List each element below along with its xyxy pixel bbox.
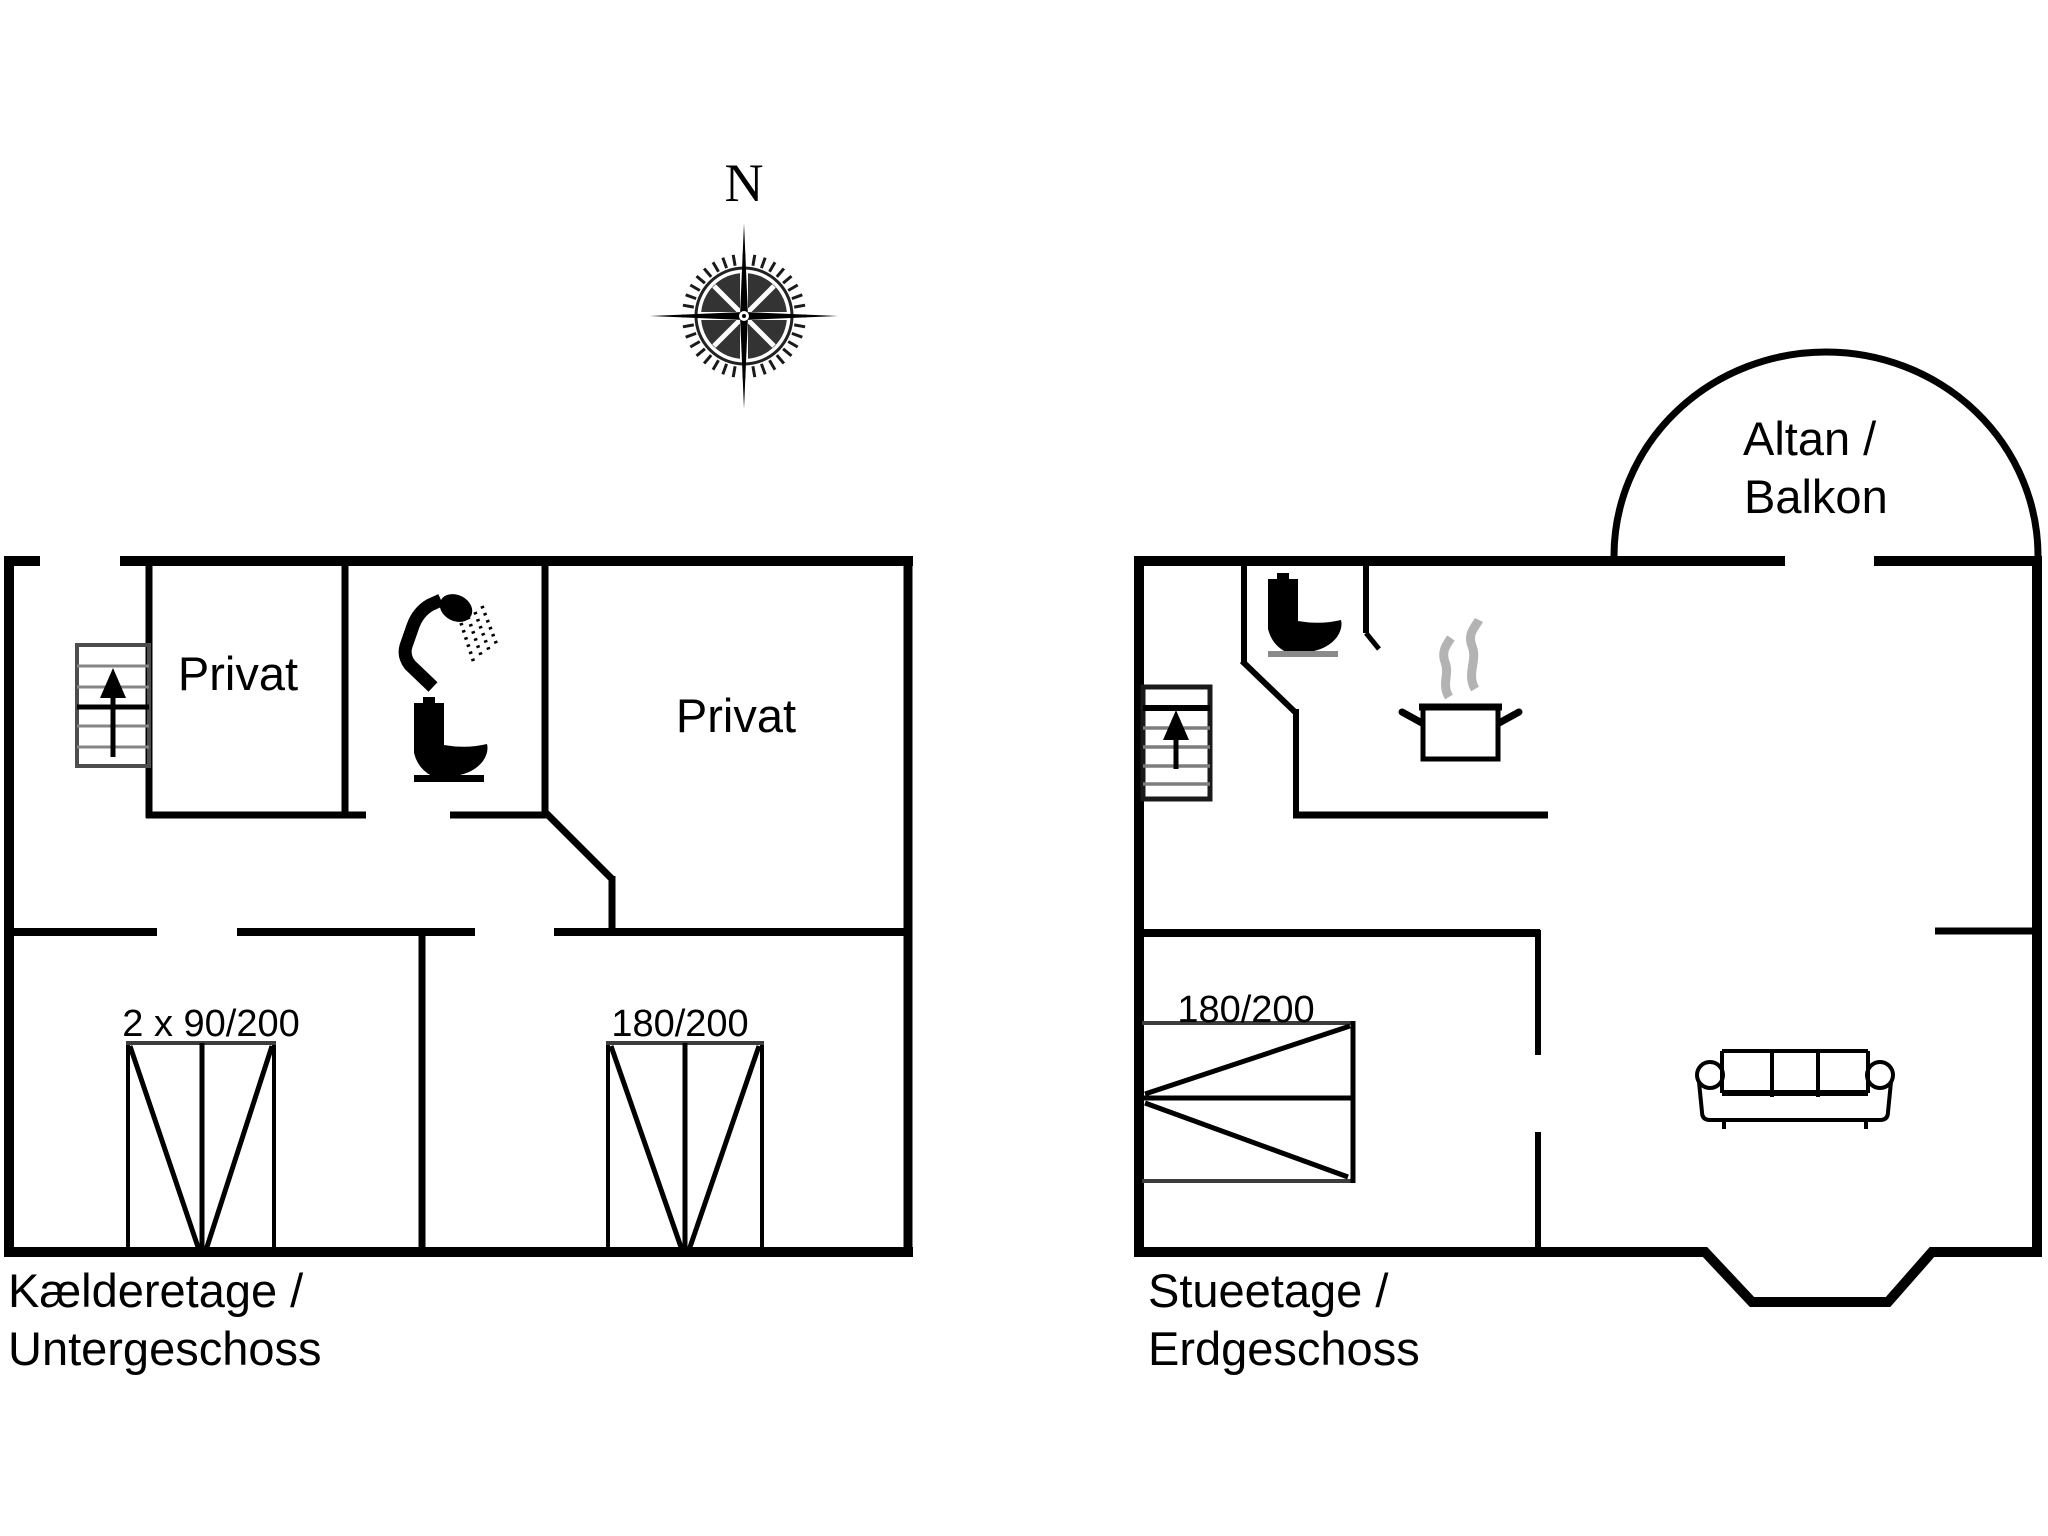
svg-text:N: N [725, 153, 764, 213]
svg-text:Privat: Privat [676, 689, 796, 742]
svg-text:180/200: 180/200 [611, 1003, 748, 1045]
svg-text:2 x 90/200: 2 x 90/200 [122, 1003, 299, 1045]
svg-text:Erdgeschoss: Erdgeschoss [1148, 1322, 1420, 1375]
svg-text:Untergeschoss: Untergeschoss [8, 1322, 322, 1375]
svg-text:Altan /: Altan / [1743, 412, 1877, 465]
svg-text:180/200: 180/200 [1177, 989, 1314, 1031]
svg-text:Privat: Privat [178, 647, 298, 700]
svg-text:Stueetage /: Stueetage / [1148, 1264, 1389, 1317]
svg-text:Balkon: Balkon [1744, 470, 1888, 523]
svg-text:Kælderetage /: Kælderetage / [8, 1264, 304, 1317]
